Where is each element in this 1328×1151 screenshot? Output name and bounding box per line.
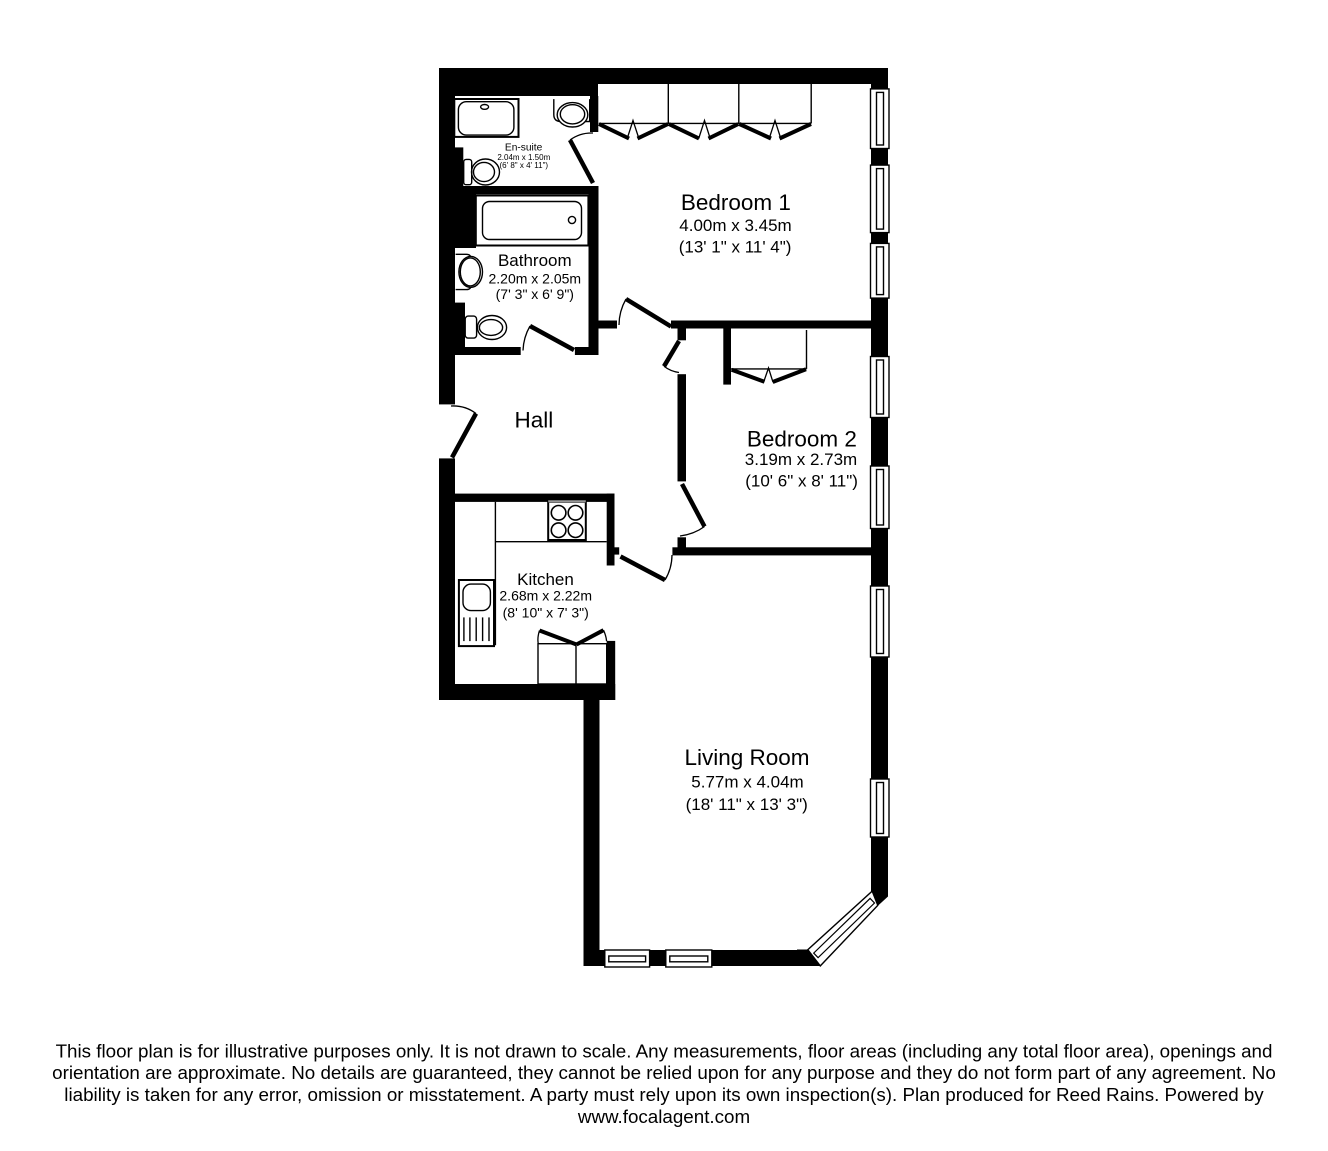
svg-text:(8' 10" x 7' 3"): (8' 10" x 7' 3") bbox=[503, 605, 589, 621]
svg-text:Bedroom 1: Bedroom 1 bbox=[681, 190, 791, 215]
svg-text:3.19m x 2.73m: 3.19m x 2.73m bbox=[745, 450, 857, 469]
svg-text:Living Room: Living Room bbox=[684, 745, 809, 770]
svg-text:2.68m x 2.22m: 2.68m x 2.22m bbox=[499, 588, 592, 604]
svg-text:This floor plan is for illustr: This floor plan is for illustrative purp… bbox=[56, 1040, 1273, 1061]
svg-text:(18' 11" x 13' 3"): (18' 11" x 13' 3") bbox=[686, 795, 808, 814]
svg-text:liability is taken for any err: liability is taken for any error, omissi… bbox=[64, 1084, 1264, 1105]
svg-text:Kitchen: Kitchen bbox=[517, 570, 574, 589]
svg-text:Bathroom: Bathroom bbox=[498, 251, 572, 270]
svg-text:(6' 8" x 4' 11"): (6' 8" x 4' 11") bbox=[499, 161, 548, 170]
svg-text:www.focalagent.com: www.focalagent.com bbox=[577, 1106, 750, 1127]
svg-text:(7' 3" x 6' 9"): (7' 3" x 6' 9") bbox=[496, 286, 574, 302]
svg-text:2.20m x 2.05m: 2.20m x 2.05m bbox=[488, 271, 581, 287]
svg-text:orientation are approximate. N: orientation are approximate. No details … bbox=[52, 1062, 1276, 1083]
svg-text:Bedroom 2: Bedroom 2 bbox=[747, 426, 857, 451]
svg-text:Hall: Hall bbox=[515, 408, 554, 433]
svg-text:5.77m x 4.04m: 5.77m x 4.04m bbox=[691, 773, 803, 792]
svg-text:(10' 6" x 8' 11"): (10' 6" x 8' 11") bbox=[745, 472, 858, 491]
svg-text:4.00m x 3.45m: 4.00m x 3.45m bbox=[679, 216, 791, 235]
svg-text:(13' 1" x 11' 4"): (13' 1" x 11' 4") bbox=[679, 238, 792, 257]
